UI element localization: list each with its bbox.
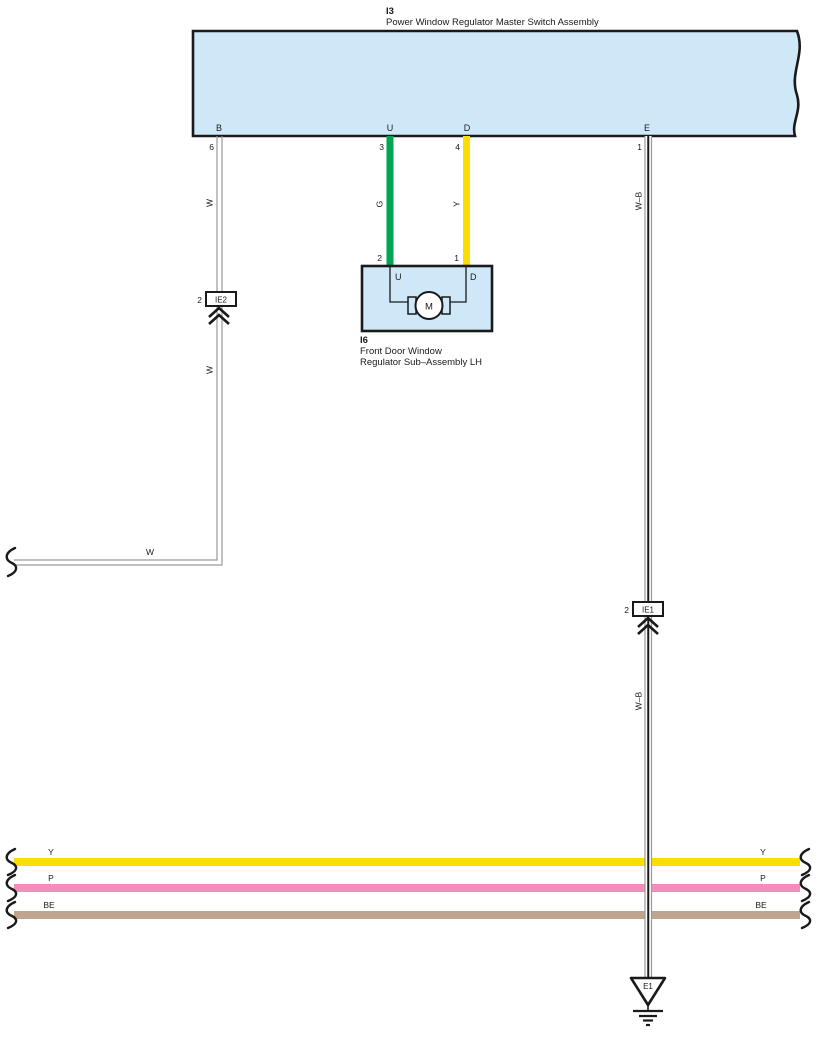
bus-label-BE-right: BE <box>755 900 767 910</box>
motor-label: M <box>425 302 433 313</box>
wiring-diagram: I3 Power Window Regulator Master Switch … <box>0 0 817 1034</box>
wire-break-squiggle-W <box>7 548 16 576</box>
wire-label-Y: Y <box>451 201 461 207</box>
bus-wire-yellow <box>14 858 800 866</box>
pin-number-E: 1 <box>637 142 642 152</box>
master-switch-box <box>193 31 800 136</box>
connector-IE2-chevron-icon <box>209 308 229 324</box>
master-switch-code: I3 <box>386 6 394 17</box>
bus-label-BE-left: BE <box>43 900 55 910</box>
master-switch-title: Power Window Regulator Master Switch Ass… <box>386 17 599 28</box>
pin-number-D: 4 <box>455 142 460 152</box>
pin-letter-E: E <box>644 123 650 133</box>
connector-IE2-pin: 2 <box>197 295 202 305</box>
pin-number-B: 6 <box>209 142 214 152</box>
wiring-diagram-canvas: I3 Power Window Regulator Master Switch … <box>0 0 817 1034</box>
regulator-title-line2: Regulator Sub–Assembly LH <box>360 357 482 368</box>
connector-IE2-label: IE2 <box>215 296 228 305</box>
pin-letter-D: D <box>464 123 471 133</box>
regulator-pin-number-U: 2 <box>377 253 382 263</box>
wire-green-G <box>387 136 394 266</box>
connector-IE1-label: IE1 <box>642 606 655 615</box>
pin-letter-B: B <box>216 123 222 133</box>
bus-wire-pink <box>14 884 800 892</box>
wire-yellow-Y <box>463 136 470 266</box>
wire-white-black-WB <box>645 136 652 978</box>
wire-label-W-mid: W <box>204 366 214 374</box>
bus-break-squiggles-right <box>801 849 810 928</box>
ground-label: E1 <box>643 982 653 991</box>
bus-wire-beige <box>14 911 800 919</box>
regulator-pin-number-D: 1 <box>454 253 459 263</box>
wire-label-G: G <box>374 201 384 208</box>
wire-white-W <box>14 136 222 565</box>
regulator-pin-letter-U: U <box>395 272 402 282</box>
bus-label-Y-right: Y <box>760 847 766 857</box>
wire-label-W-branch: W <box>146 547 154 557</box>
wire-label-WB-upper: W–B <box>633 191 643 210</box>
pin-number-U: 3 <box>379 142 384 152</box>
regulator-pin-letter-D: D <box>470 272 477 282</box>
bus-label-Y-left: Y <box>48 847 54 857</box>
pin-letter-U: U <box>387 123 394 133</box>
regulator-title-line1: Front Door Window <box>360 346 442 357</box>
wire-label-W-upper: W <box>204 199 214 207</box>
connector-IE1-pin: 2 <box>624 605 629 615</box>
bus-label-P-left: P <box>48 873 54 883</box>
regulator-code: I6 <box>360 335 368 346</box>
bus-label-P-right: P <box>760 873 766 883</box>
wire-label-WB-lower: W–B <box>633 691 643 710</box>
